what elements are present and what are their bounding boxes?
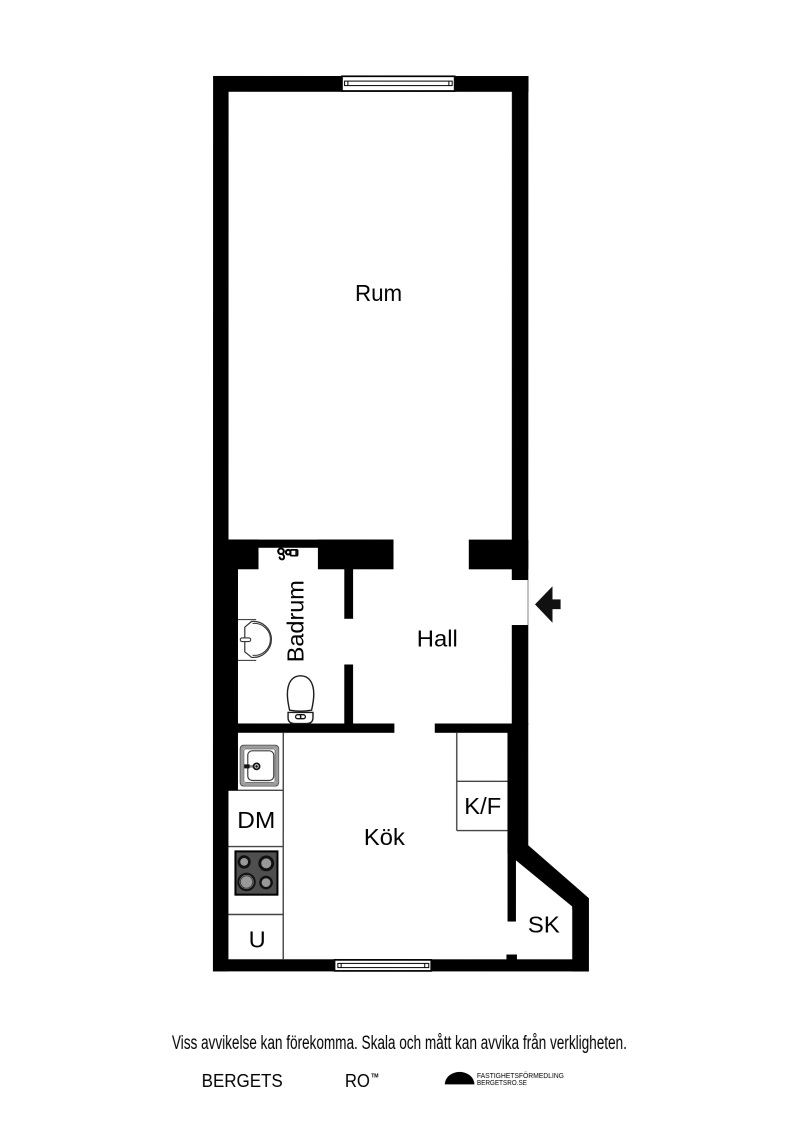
- svg-text:Badrum: Badrum: [282, 580, 308, 662]
- svg-text:Rum: Rum: [355, 280, 402, 306]
- svg-text:TM: TM: [371, 1073, 378, 1079]
- svg-text:SK: SK: [528, 912, 560, 938]
- svg-text:K/F: K/F: [464, 793, 501, 819]
- svg-text:RO: RO: [345, 1071, 370, 1092]
- svg-text:Hall: Hall: [417, 626, 458, 652]
- svg-text:Viss avvikelse kan förekomma.: Viss avvikelse kan förekomma. Skala och …: [172, 1033, 627, 1054]
- svg-text:U: U: [249, 926, 266, 952]
- svg-text:BERGETSRO.SE: BERGETSRO.SE: [477, 1078, 527, 1087]
- svg-text:BERGETS: BERGETS: [202, 1071, 283, 1092]
- svg-text:Kök: Kök: [364, 824, 405, 850]
- svg-text:DM: DM: [237, 807, 275, 833]
